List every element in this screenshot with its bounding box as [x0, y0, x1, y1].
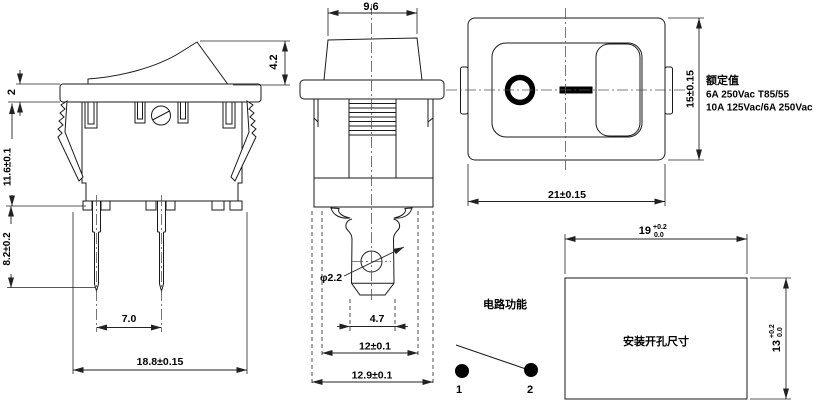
rating-line2: 10A 125Vac/6A 250Vac	[706, 103, 813, 114]
mounting-height-tol-upper: +0.2	[769, 324, 776, 338]
rocker-profile	[88, 42, 228, 85]
mounting-width-tol-upper: +0.2	[653, 224, 667, 231]
screw-slot	[152, 106, 171, 125]
rating-title: 额定值	[706, 73, 739, 87]
top-view-geometry	[446, 8, 686, 170]
side-view-geometry	[58, 42, 261, 332]
terminal-pin-left	[93, 195, 101, 332]
side-tab-left	[461, 67, 469, 114]
bottom-slots	[83, 201, 242, 210]
dim-rocker-height: 4.2	[268, 54, 280, 69]
rocker-cap-front	[324, 38, 422, 80]
dim-body-height: 11.6±0.1	[3, 147, 14, 186]
circuit-title: 电路功能	[483, 297, 527, 311]
mounting-height-value: 13	[771, 340, 783, 352]
dim-flange-width: 12.9±0.1	[352, 370, 393, 382]
dim-terminal-width: 4.7	[370, 313, 385, 325]
dim-pin-length: 8.2±0.2	[2, 232, 13, 266]
snap-leg-left	[58, 101, 83, 181]
dim-cap-width: 9.6	[363, 1, 378, 13]
ribbed-section	[349, 99, 396, 178]
circuit-function: 电路功能 1 2	[455, 297, 538, 396]
contact-dot-1	[455, 364, 469, 378]
dim-flange-thickness: 2	[6, 89, 18, 95]
dim-top-width: 21±0.15	[548, 189, 586, 201]
flange-front	[300, 80, 444, 99]
rating-line1: 6A 250Vac T85/55	[706, 90, 789, 101]
rocker-switch-technical-drawing: 4.2 2 11.6±0.1 8.2±0.2 7.0 18.8±0.15	[0, 0, 820, 406]
body-front	[314, 99, 433, 207]
mounting-height-tol-lower: 0.0	[777, 327, 784, 337]
flange-side	[60, 84, 261, 102]
mounting-width-tol-lower: 0.0	[654, 232, 664, 239]
front-view-geometry	[300, 4, 444, 303]
mounting-hole-view: 安装开孔尺寸 19 +0.2 0.0 13 +0.2 0.0	[565, 224, 791, 399]
switch-contact-line	[456, 345, 526, 369]
terminal-pin-right	[158, 195, 166, 332]
dim-front-body-width: 12±0.1	[359, 341, 391, 353]
dim-top-height: 15±0.15	[685, 70, 697, 108]
terminal-label-2: 2	[527, 384, 533, 396]
dim-hole-diameter: φ2.2	[320, 272, 342, 284]
mounting-label: 安装开孔尺寸	[623, 334, 689, 348]
terminal-label-1: 1	[456, 384, 462, 396]
rating-block: 额定值 6A 250Vac T85/55 10A 125Vac/6A 250Va…	[706, 73, 813, 114]
side-tab-right	[665, 67, 673, 114]
contact-dot-2	[524, 363, 538, 377]
mounting-width-value: 19	[639, 225, 651, 237]
dim-side-body-width: 18.8±0.15	[137, 356, 184, 368]
dim-pin-spacing: 7.0	[122, 313, 137, 325]
terminal-blade	[346, 219, 400, 295]
body-outline-side	[82, 102, 242, 201]
drawing-sheet: 4.2 2 11.6±0.1 8.2±0.2 7.0 18.8±0.15	[0, 0, 820, 406]
